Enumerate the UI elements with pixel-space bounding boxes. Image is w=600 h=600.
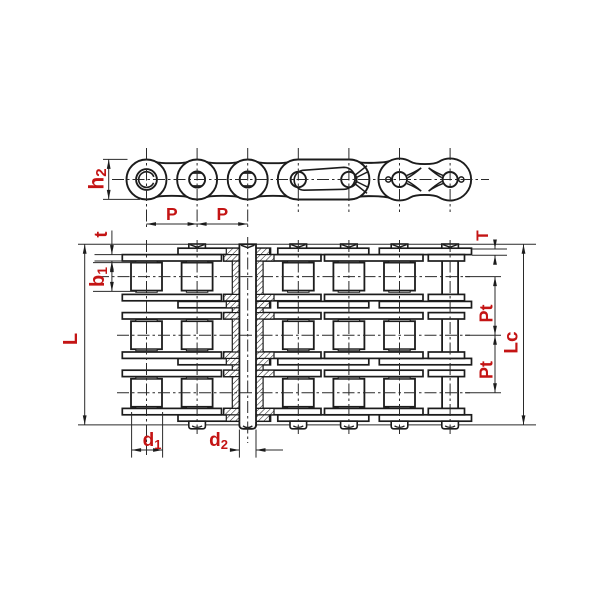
- svg-text:P: P: [166, 204, 178, 224]
- svg-text:t: t: [90, 231, 111, 237]
- svg-text:Pt: Pt: [477, 361, 497, 379]
- svg-text:T: T: [473, 230, 492, 241]
- svg-text:P: P: [217, 204, 229, 224]
- svg-text:Pt: Pt: [477, 304, 497, 322]
- svg-text:Lc: Lc: [502, 331, 523, 354]
- svg-text:L: L: [60, 333, 82, 345]
